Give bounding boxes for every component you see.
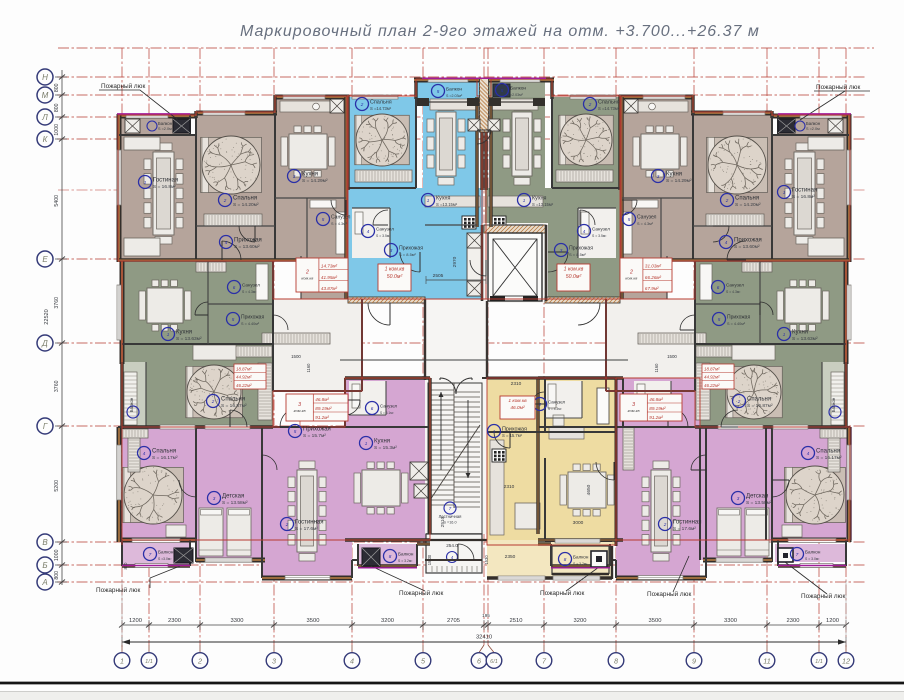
svg-text:Кухня: Кухня (302, 172, 318, 178)
svg-text:Спальня: Спальня (747, 397, 771, 403)
svg-text:8: 8 (389, 554, 392, 559)
svg-text:Спальня: Спальня (370, 100, 392, 106)
svg-text:Балкон: Балкон (446, 87, 462, 93)
svg-text:1 ком.кв: 1 ком.кв (564, 266, 584, 272)
svg-text:2: 2 (725, 198, 729, 203)
svg-text:1160: 1160 (306, 363, 311, 373)
svg-text:14.73м²: 14.73м² (321, 264, 338, 269)
svg-text:S = 13.60м²: S = 13.60м² (234, 244, 260, 250)
svg-text:Санузел: Санузел (376, 227, 394, 232)
svg-text:1200: 1200 (826, 618, 839, 624)
svg-text:Балкон: Балкон (831, 397, 836, 412)
svg-text:2300: 2300 (787, 618, 800, 624)
svg-text:S = 4.3м²: S = 4.3м² (242, 290, 257, 294)
svg-text:S = 4.3м²: S = 4.3м² (331, 222, 348, 226)
svg-text:4: 4 (583, 229, 586, 234)
svg-text:1: 1 (427, 198, 430, 203)
svg-text:1000: 1000 (54, 124, 60, 136)
svg-text:Санузел: Санузел (242, 283, 260, 288)
svg-text:Балкон: Балкон (805, 550, 821, 555)
svg-text:1/1: 1/1 (145, 659, 153, 665)
svg-text:2: 2 (737, 399, 741, 404)
svg-text:32410: 32410 (476, 635, 492, 641)
svg-text:S = 8.5м²: S = 8.5м² (399, 252, 417, 257)
svg-text:46.0м²: 46.0м² (510, 405, 525, 411)
svg-text:Спальня: Спальня (735, 196, 759, 202)
svg-text:S = 14.29м²: S = 14.29м² (302, 178, 328, 184)
svg-text:Спальня: Спальня (152, 449, 176, 455)
svg-text:5: 5 (501, 88, 504, 93)
svg-text:S = 16.17м²: S = 16.17м² (152, 455, 178, 461)
svg-text:Прихожая: Прихожая (234, 238, 262, 244)
svg-text:S = 3.2м²: S = 3.2м² (573, 562, 588, 566)
svg-text:18.87м²: 18.87м² (236, 366, 252, 371)
svg-text:9: 9 (692, 656, 696, 665)
svg-text:2: 2 (197, 656, 202, 665)
svg-text:2: 2 (588, 102, 592, 107)
svg-text:6: 6 (233, 285, 236, 290)
svg-text:43.87м²: 43.87м² (321, 286, 338, 291)
svg-text:Санузел: Санузел (726, 283, 744, 288)
svg-text:Прихожая: Прихожая (569, 246, 593, 252)
svg-text:Санузел: Санузел (637, 215, 657, 221)
svg-text:6: 6 (477, 656, 481, 665)
svg-text:Пожарный люк: Пожарный люк (647, 590, 691, 598)
svg-text:2: 2 (211, 399, 215, 404)
svg-text:2: 2 (360, 102, 364, 107)
svg-text:2510: 2510 (510, 618, 523, 624)
svg-text:S = 14.20м²: S = 14.20м² (233, 202, 259, 208)
svg-text:5: 5 (437, 89, 440, 94)
svg-text:Балкон: Балкон (573, 555, 589, 560)
svg-text:67.9м²: 67.9м² (645, 286, 659, 291)
svg-text:S = 4.40м²: S = 4.40м² (727, 322, 746, 326)
svg-text:Прихожая: Прихожая (303, 427, 331, 433)
svg-text:7: 7 (796, 552, 799, 557)
svg-text:5: 5 (628, 217, 631, 222)
svg-text:50.0м²: 50.0м² (387, 274, 403, 280)
svg-text:91.2м²: 91.2м² (315, 415, 329, 420)
svg-text:Балкон: Балкон (129, 397, 134, 412)
svg-text:2510: 2510 (440, 516, 446, 527)
svg-text:46.22м²: 46.22м² (236, 383, 252, 388)
svg-text:S =13.15м²: S =13.15м² (532, 202, 554, 207)
svg-text:254.0: 254.0 (446, 543, 458, 548)
svg-text:Детская: Детская (746, 494, 768, 500)
svg-text:89.19м²: 89.19м² (649, 406, 666, 411)
svg-text:1160: 1160 (654, 363, 659, 373)
svg-text:ком.кв: ком.кв (294, 408, 306, 413)
svg-text:S = 17.6м²: S = 17.6м² (673, 526, 696, 532)
svg-text:1200: 1200 (129, 618, 142, 624)
svg-text:Прихожая: Прихожая (241, 315, 264, 321)
svg-text:S = 13.63м²: S = 13.63м² (176, 336, 202, 342)
svg-text:1: 1 (783, 332, 786, 337)
svg-text:Санузел: Санузел (331, 215, 351, 221)
svg-text:Пожарный люк: Пожарный люк (816, 83, 860, 91)
svg-text:3: 3 (390, 248, 393, 253)
svg-text:2505: 2505 (433, 273, 444, 279)
svg-text:3200: 3200 (574, 618, 587, 624)
svg-text:6: 6 (371, 406, 374, 411)
svg-text:Пожарный люк: Пожарный люк (801, 592, 845, 600)
svg-text:50.0м²: 50.0м² (566, 274, 582, 280)
svg-text:Прихожая: Прихожая (502, 427, 527, 433)
svg-text:М: М (42, 91, 49, 100)
svg-text:S =14.73м²: S =14.73м² (598, 106, 620, 111)
svg-text:Балкон: Балкон (806, 121, 821, 126)
svg-text:S = 13.58м²: S = 13.58м² (746, 500, 772, 506)
svg-text:1: 1 (120, 656, 124, 665)
svg-text:Кухня: Кухня (666, 172, 682, 178)
svg-text:8: 8 (614, 656, 618, 665)
svg-text:12: 12 (842, 656, 850, 665)
svg-text:2: 2 (538, 402, 542, 407)
svg-text:Б: Б (42, 561, 47, 570)
svg-text:S =13.15м²: S =13.15м² (436, 202, 458, 207)
svg-text:2310: 2310 (504, 484, 515, 490)
svg-text:Гостинная: Гостинная (673, 520, 702, 526)
svg-text:66.26м²: 66.26м² (645, 275, 662, 280)
svg-text:1: 1 (493, 429, 496, 434)
svg-text:S = 3.5м²: S = 3.5м² (592, 234, 607, 238)
svg-text:Л: Л (41, 113, 48, 122)
svg-text:4: 4 (367, 229, 370, 234)
svg-text:S =2.0м: S =2.0м (806, 127, 820, 131)
svg-text:S = 16.8м²: S = 16.8м² (792, 194, 815, 200)
svg-text:Кухня: Кухня (792, 330, 808, 336)
svg-text:Кухня: Кухня (176, 330, 192, 336)
svg-text:44.92м²: 44.92м² (236, 375, 252, 380)
svg-text:1: 1 (167, 332, 170, 337)
svg-text:Маркировочный план 2-9го этаже: Маркировочный план 2-9го этажей на отм. … (240, 23, 760, 40)
svg-text:Д: Д (41, 339, 48, 348)
svg-text:S = 4.3м²: S = 4.3м² (637, 222, 654, 226)
svg-text:S = 17.6м²: S = 17.6м² (295, 526, 318, 532)
svg-text:89.19м²: 89.19м² (315, 406, 332, 411)
svg-text:4: 4 (143, 451, 146, 456)
svg-text:4650: 4650 (586, 484, 592, 495)
svg-text:Спальня: Спальня (221, 397, 245, 403)
svg-text:3000: 3000 (573, 520, 584, 526)
svg-text:3: 3 (213, 496, 216, 501)
svg-text:Кухня: Кухня (436, 196, 451, 202)
svg-text:1 ком.кв: 1 ком.кв (508, 398, 527, 404)
svg-text:3500: 3500 (307, 618, 320, 624)
svg-text:Гостинная: Гостинная (295, 520, 324, 526)
svg-text:2: 2 (223, 198, 227, 203)
svg-text:S = 16.87м²: S = 16.87м² (747, 403, 773, 409)
svg-text:3: 3 (560, 248, 563, 253)
svg-text:1000: 1000 (54, 549, 60, 561)
svg-text:3: 3 (657, 174, 660, 179)
svg-text:3: 3 (293, 174, 296, 179)
svg-text:Балкон: Балкон (158, 550, 174, 555)
svg-text:2: 2 (663, 522, 667, 527)
svg-text:S = 8.5м²: S = 8.5м² (569, 252, 587, 257)
svg-text:S = 16.8м²: S = 16.8м² (153, 184, 176, 190)
svg-text:18.87м²: 18.87м² (704, 366, 720, 371)
svg-text:5400: 5400 (54, 195, 60, 207)
svg-text:2: 2 (285, 522, 289, 527)
svg-text:Балкон: Балкон (398, 552, 414, 557)
svg-text:Пожарный люк: Пожарный люк (96, 586, 140, 594)
svg-text:S = 4.3м²: S = 4.3м² (726, 290, 741, 294)
svg-text:Балкон: Балкон (510, 86, 526, 92)
svg-text:1500: 1500 (667, 354, 677, 359)
svg-text:5: 5 (322, 217, 325, 222)
svg-text:2705: 2705 (447, 618, 460, 624)
svg-text:S =3.0м²: S =3.0м² (158, 557, 172, 561)
svg-text:ком.кв: ком.кв (301, 276, 313, 281)
svg-text:3760: 3760 (54, 380, 60, 392)
svg-text:1500: 1500 (291, 354, 301, 359)
svg-text:800: 800 (54, 571, 60, 580)
svg-text:3500: 3500 (649, 618, 662, 624)
svg-text:800: 800 (54, 103, 60, 112)
svg-text:2970: 2970 (452, 256, 458, 267)
svg-text:2310: 2310 (511, 381, 522, 387)
svg-text:44.92м²: 44.92м² (704, 375, 720, 380)
svg-text:S = 16.87м²: S = 16.87м² (221, 403, 247, 409)
svg-text:1530: 1530 (484, 555, 489, 565)
svg-text:91.2м²: 91.2м² (649, 415, 663, 420)
svg-text:S =2.0м: S =2.0м (158, 127, 172, 131)
svg-text:Пожарный люк: Пожарный люк (540, 589, 584, 597)
svg-text:1: 1 (523, 198, 526, 203)
svg-text:4: 4 (225, 240, 228, 245)
svg-text:3760: 3760 (54, 297, 60, 309)
svg-text:Пожарный люк: Пожарный люк (399, 589, 443, 597)
svg-text:1 ком.кв: 1 ком.кв (385, 266, 405, 272)
svg-text:3: 3 (737, 496, 740, 501)
svg-text:S = 14.20м²: S = 14.20м² (735, 202, 761, 208)
svg-text:S = 13.58м²: S = 13.58м² (222, 500, 248, 506)
svg-text:5200: 5200 (54, 480, 60, 492)
svg-text:Гостиная: Гостиная (153, 178, 178, 184)
svg-text:Пожарный люк: Пожарный люк (101, 82, 145, 90)
svg-text:6/1: 6/1 (490, 659, 498, 665)
svg-text:ком.кв: ком.кв (625, 276, 637, 281)
svg-text:S = 4.3м²: S = 4.3м² (548, 407, 561, 411)
svg-text:7: 7 (149, 552, 152, 557)
svg-text:46.22м²: 46.22м² (704, 383, 720, 388)
svg-text:5: 5 (294, 429, 297, 434)
svg-text:S =2.03м²: S =2.03м² (446, 94, 463, 98)
svg-text:3300: 3300 (231, 618, 244, 624)
svg-text:5: 5 (232, 317, 235, 322)
svg-text:=2.03м²: =2.03м² (510, 93, 524, 97)
svg-text:S = 13.60м²: S = 13.60м² (734, 244, 760, 250)
svg-text:3: 3 (272, 656, 276, 665)
svg-text:S = 15.7м²: S = 15.7м² (502, 433, 523, 438)
svg-text:Прихожая: Прихожая (734, 238, 762, 244)
svg-text:Санузел: Санузел (548, 400, 566, 405)
svg-text:3300: 3300 (724, 618, 737, 624)
svg-text:195: 195 (482, 613, 490, 618)
svg-text:S = 3.5м²: S = 3.5м² (376, 234, 391, 238)
svg-text:22520: 22520 (44, 309, 50, 325)
svg-text:Спальня: Спальня (233, 196, 257, 202)
svg-text:В: В (42, 538, 48, 547)
svg-text:41.95м²: 41.95м² (321, 275, 338, 280)
svg-text:Е: Е (42, 255, 48, 264)
svg-text:S = 15.3м²: S = 15.3м² (374, 445, 397, 451)
svg-text:4: 4 (725, 240, 728, 245)
svg-text:ком.кв: ком.кв (628, 408, 640, 413)
svg-text:1/1: 1/1 (815, 659, 823, 665)
svg-text:4: 4 (807, 451, 810, 456)
svg-text:S = 13.63м²: S = 13.63м² (792, 336, 818, 342)
svg-text:1: 1 (144, 180, 147, 185)
svg-text:S = 5.1м²: S = 5.1м² (380, 411, 393, 415)
svg-text:46.8м²: 46.8м² (315, 397, 329, 402)
svg-text:800: 800 (54, 83, 60, 92)
svg-text:S = 16.17м²: S = 16.17м² (816, 455, 842, 461)
svg-text:Спальня: Спальня (598, 100, 620, 106)
svg-text:4: 4 (350, 656, 354, 665)
svg-text:S = 3.0м²: S = 3.0м² (805, 557, 820, 561)
svg-text:2350: 2350 (505, 554, 516, 560)
svg-text:46.8м²: 46.8м² (649, 397, 663, 402)
svg-text:Кухня: Кухня (532, 196, 547, 202)
svg-text:1: 1 (365, 441, 368, 446)
svg-text:Прихожая: Прихожая (727, 315, 750, 321)
svg-text:S = 4.40м²: S = 4.40м² (241, 322, 260, 326)
svg-text:Детская: Детская (222, 494, 244, 500)
svg-text:S = 3.2м²: S = 3.2м² (398, 559, 413, 563)
svg-text:2300: 2300 (168, 618, 181, 624)
svg-text:6: 6 (717, 285, 720, 290)
svg-text:Санузел: Санузел (380, 404, 398, 409)
svg-text:Гостиная: Гостиная (792, 188, 817, 194)
svg-text:Спальня: Спальня (816, 449, 840, 455)
svg-text:Кухня: Кухня (374, 439, 390, 445)
svg-text:Г: Г (43, 422, 48, 431)
svg-text:Н: Н (42, 73, 48, 82)
svg-text:Санузел: Санузел (592, 227, 610, 232)
svg-text:Балкон: Балкон (158, 121, 173, 126)
svg-text:А: А (41, 578, 47, 587)
svg-text:Прихожая: Прихожая (399, 246, 423, 252)
svg-text:3200: 3200 (381, 618, 394, 624)
svg-text:31.03м²: 31.03м² (645, 264, 662, 269)
svg-text:S =14.73м²: S =14.73м² (370, 106, 392, 111)
svg-text:S = 14.29м²: S = 14.29м² (666, 178, 692, 184)
svg-text:11: 11 (763, 656, 770, 665)
svg-text:1: 1 (783, 190, 786, 195)
svg-text:5: 5 (718, 317, 721, 322)
svg-text:8: 8 (564, 557, 567, 562)
svg-text:S = 15.7м²: S = 15.7м² (303, 433, 326, 439)
